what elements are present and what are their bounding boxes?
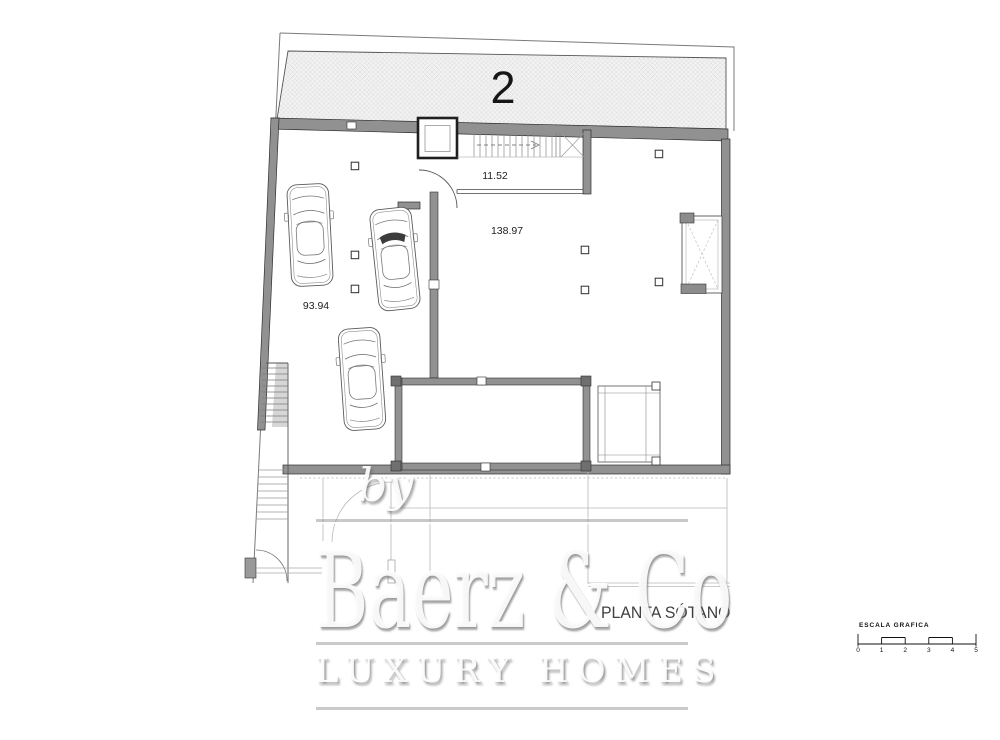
area-label-main-room: 138.97 (472, 225, 542, 237)
car (334, 327, 390, 432)
elevator-shaft (680, 213, 722, 294)
area-label-staircase: 11.52 (462, 170, 528, 182)
divider-wall (429, 192, 439, 378)
central-room (391, 376, 591, 471)
scale-tick-0: 0 (853, 647, 863, 654)
scale-tick-3: 3 (924, 647, 934, 654)
plan-title: PLANTA SÓTANO (601, 603, 730, 623)
car (283, 183, 337, 287)
interior-stairwell (598, 382, 660, 465)
car (365, 206, 424, 312)
scale-bar-graphic (858, 634, 976, 647)
ground-floor-overlay (300, 472, 730, 587)
floorplan-page: 2 11.52 138.97 93.94 PLANTA SÓTANO ESCAL… (0, 0, 1000, 740)
scale-tick-5: 5 (971, 647, 981, 654)
scale-tick-1: 1 (877, 647, 887, 654)
area-label-garage: 93.94 (281, 300, 351, 312)
scale-bar-label: ESCALA GRAFICA (859, 622, 930, 629)
scale-tick-2: 2 (900, 647, 910, 654)
unit-number-label: 2 (468, 62, 538, 114)
scale-tick-4: 4 (947, 647, 957, 654)
elevator-box (418, 118, 457, 158)
